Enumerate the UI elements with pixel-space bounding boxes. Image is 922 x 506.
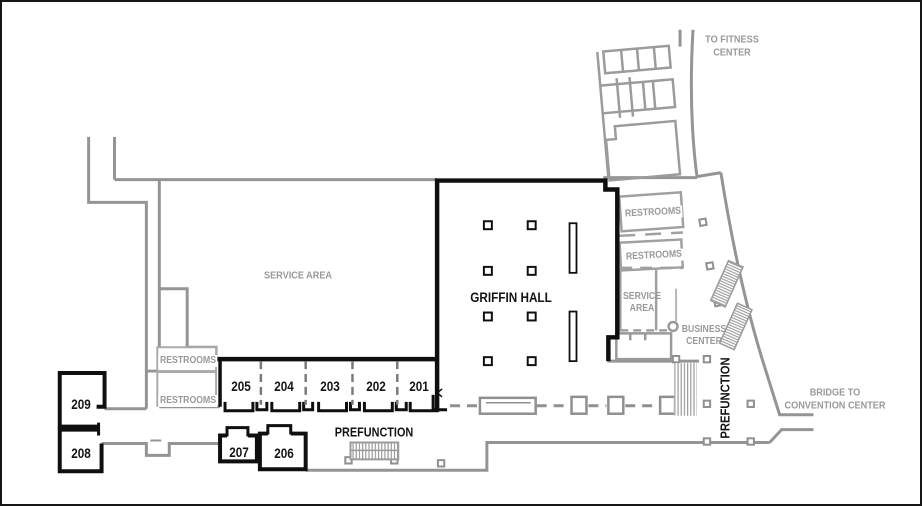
griffin-hall-walls — [216, 181, 617, 412]
stairs-icon — [350, 442, 398, 459]
floor-plan: SERVICE AREA RESTROOMS RESTROOMS 209 208… — [0, 0, 922, 506]
business-center-line2: CENTER — [682, 336, 726, 348]
service-area-right-label: SERVICE AREA — [623, 291, 661, 315]
service-area-left-label: SERVICE AREA — [264, 270, 332, 283]
bridge-line2: CONVENTION CENTER — [784, 399, 885, 412]
room-207-label: 207 — [229, 445, 249, 461]
corridor-column — [608, 397, 623, 414]
room-208-label: 208 — [71, 446, 91, 462]
business-center-line1: BUSINESS — [682, 324, 726, 336]
restrooms-left-lower-label: RESTROOMS — [158, 395, 218, 407]
fitness-stair-complex — [597, 46, 681, 181]
prefunction-bottom-label: PREFUNCTION — [335, 426, 414, 441]
griffin-hall-label: GRIFFIN HALL — [470, 290, 552, 306]
fitness-line1: TO FITNESS — [705, 33, 759, 46]
restrooms-left-upper-label: RESTROOMS — [158, 355, 218, 367]
prefunction-right-label: PREFUNCTION — [719, 357, 734, 438]
service-right-line1: SERVICE — [623, 291, 661, 303]
room-206-label: 206 — [274, 446, 294, 462]
room-207-door-icon — [227, 428, 248, 437]
bridge-to-convention-center-label: BRIDGE TO CONVENTION CENTER — [784, 386, 885, 411]
stairs-icon — [674, 363, 697, 416]
corridor-dashed-line — [450, 397, 675, 414]
fitness-line2: CENTER — [705, 46, 759, 59]
corridor-column — [660, 397, 675, 414]
room-203-label: 203 — [320, 379, 340, 395]
registration-desk — [480, 398, 536, 414]
business-center-room — [616, 322, 677, 359]
room-205-label: 205 — [231, 379, 251, 395]
to-fitness-center-label: TO FITNESS CENTER — [705, 33, 759, 58]
room-206-door-icon — [268, 426, 291, 435]
service-right-line2: AREA — [623, 303, 661, 315]
escalator-icon — [711, 261, 743, 307]
strip-door-icons — [225, 402, 437, 411]
room-204-label: 204 — [274, 379, 294, 395]
airwall-bar — [570, 312, 577, 362]
corridor-column — [572, 397, 587, 414]
bridge-line1: BRIDGE TO — [784, 386, 885, 399]
airwall-bar — [570, 223, 577, 273]
room-209-label: 209 — [71, 397, 91, 413]
room-202-label: 202 — [366, 379, 386, 395]
business-center-marker-icon — [669, 322, 678, 331]
business-center-label: BUSINESS CENTER — [682, 324, 726, 348]
floor-plan-walls — [2, 2, 920, 504]
room-201-label: 201 — [409, 379, 429, 395]
